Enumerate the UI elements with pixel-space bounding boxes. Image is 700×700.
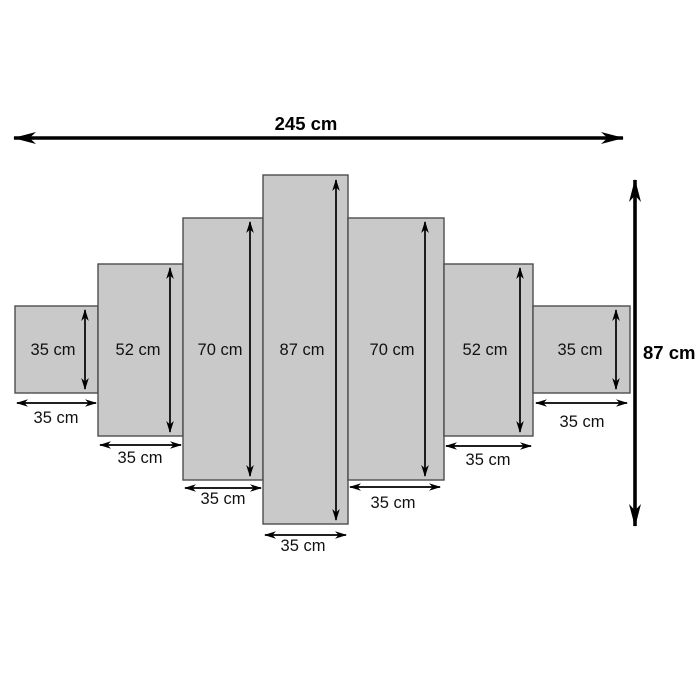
- panel-7: 35 cm 35 cm: [533, 306, 630, 431]
- panel-height-label: 52 cm: [463, 341, 508, 359]
- panel-3: 70 cm 35 cm: [183, 218, 263, 508]
- panel-4: 87 cm 35 cm: [263, 175, 348, 555]
- overall-height-dimension: 87 cm: [635, 180, 695, 526]
- panel-width-label: 35 cm: [466, 451, 511, 469]
- panel-height-label: 70 cm: [198, 341, 243, 359]
- panel-width-label: 35 cm: [118, 449, 163, 467]
- panel-width-label: 35 cm: [201, 490, 246, 508]
- panel-height-label: 87 cm: [280, 341, 325, 359]
- overall-width-dimension: 245 cm: [14, 113, 623, 138]
- panel-width-label: 35 cm: [560, 413, 605, 431]
- panel-6: 52 cm 35 cm: [444, 264, 533, 469]
- panel-height-label: 35 cm: [31, 341, 76, 359]
- panel-5: 70 cm 35 cm: [348, 218, 444, 512]
- panel-width-label: 35 cm: [34, 409, 79, 427]
- overall-width-label: 245 cm: [275, 113, 338, 134]
- panel-width-label: 35 cm: [281, 537, 326, 555]
- diagram-canvas: 245 cm 87 cm 35 cm 35 cm 52 cm 35 cm 70 …: [0, 0, 700, 700]
- overall-height-label: 87 cm: [643, 342, 695, 363]
- dimension-diagram: 245 cm 87 cm 35 cm 35 cm 52 cm 35 cm 70 …: [0, 0, 700, 700]
- panel-height-label: 70 cm: [370, 341, 415, 359]
- panel-height-label: 52 cm: [116, 341, 161, 359]
- panel-height-label: 35 cm: [558, 341, 603, 359]
- panel-width-label: 35 cm: [371, 494, 416, 512]
- panel-2: 52 cm 35 cm: [98, 264, 183, 467]
- panel-1: 35 cm 35 cm: [15, 306, 98, 427]
